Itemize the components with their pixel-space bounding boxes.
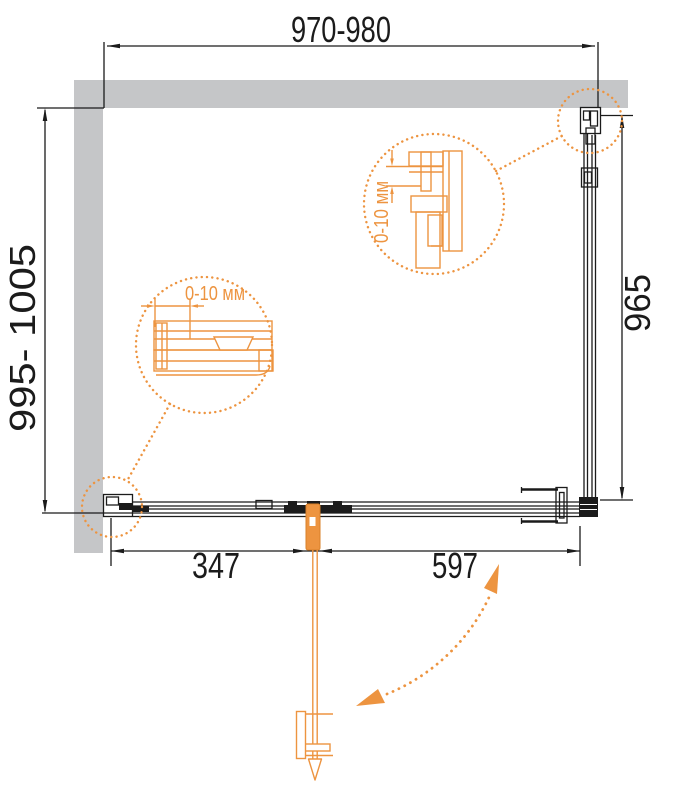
dim-right: 965 (600, 115, 658, 500)
wall-top (74, 80, 628, 108)
door-hinge (306, 504, 320, 550)
door-bottom-cap (303, 744, 330, 751)
dim-bottom-left-label: 347 (192, 545, 240, 586)
dim-bottom: 347 597 (111, 518, 580, 586)
detail-upper-profile-drawing (386, 150, 462, 268)
dim-top-label: 970-980 (291, 9, 391, 50)
detail-upper-label: 0-10 мм (371, 181, 393, 243)
door-tip (309, 759, 322, 780)
detail-leader-upper (496, 136, 562, 171)
dim-left-label: 995- 1005 (2, 244, 43, 432)
detail-circle-upper: 0-10 мм (364, 134, 504, 274)
dim-bottom-right-label: 597 (432, 545, 478, 586)
detail-leader-lower (127, 404, 170, 481)
installation-drawing: 970-980 995- 1005 965 347 597 (0, 0, 673, 800)
detail-circle-lower: 0-10 мм (136, 277, 273, 413)
swing-arrow-left-icon (356, 689, 385, 706)
detail-lower-profile-drawing (141, 299, 273, 375)
door-glass (313, 550, 317, 760)
dim-right-label: 965 (617, 274, 658, 332)
detail-lower-label: 0-10 мм (185, 283, 245, 305)
drawing-canvas: 970-980 995- 1005 965 347 597 (0, 0, 673, 800)
corner-junction (579, 497, 598, 517)
wall-left (74, 80, 103, 553)
swing-arrow-up-icon (484, 564, 499, 594)
shower-door (297, 504, 334, 780)
